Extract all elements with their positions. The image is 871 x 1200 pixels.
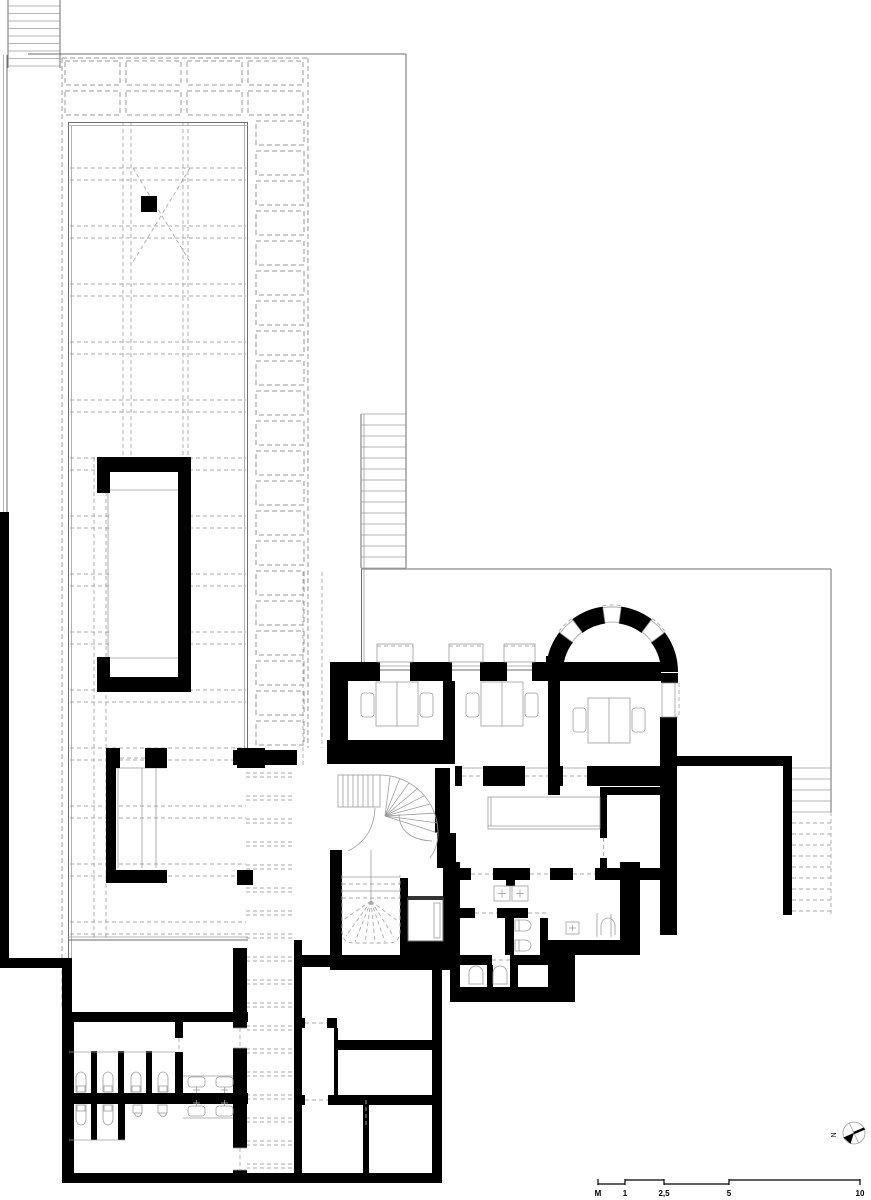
scale-tick-5: 5 — [727, 1189, 732, 1198]
north-label: N — [831, 1132, 838, 1137]
scale-tick-10: 10 — [856, 1189, 865, 1198]
scale-tick-1: 1 — [623, 1189, 628, 1198]
floor-plan-canvas: N M 1 2,5 5 10 — [0, 0, 871, 1200]
scale-unit-label: M — [595, 1189, 602, 1198]
floor-plan-drawing: N M 1 2,5 5 10 — [0, 0, 871, 1200]
scale-tick-2-5: 2,5 — [658, 1189, 670, 1198]
